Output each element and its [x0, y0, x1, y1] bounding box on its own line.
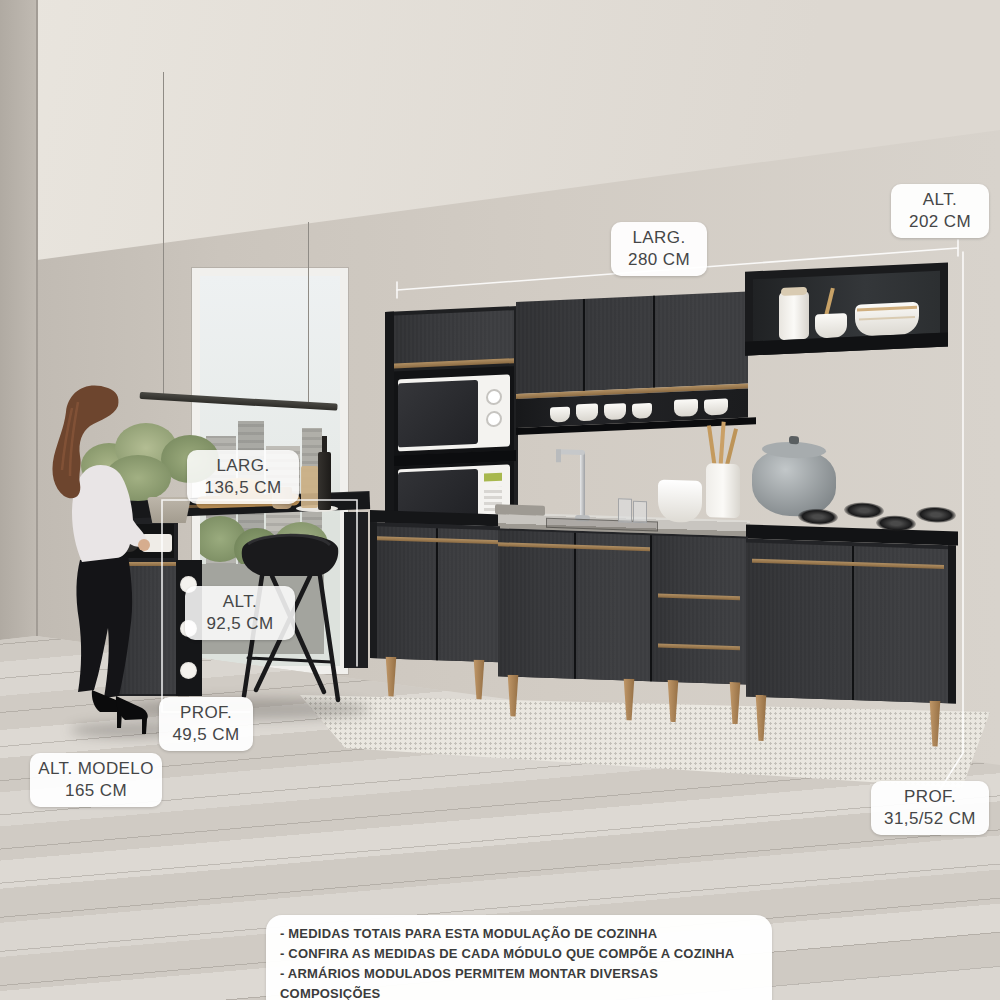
- cooktop-burner: [798, 508, 838, 525]
- base-unit-left-doors: [377, 526, 500, 662]
- door-seam: [436, 528, 438, 660]
- label-line: ALT.: [193, 591, 287, 613]
- drying-tray: [495, 504, 545, 516]
- counter-bowl-stack: [658, 480, 702, 523]
- pot-knob: [789, 436, 799, 444]
- wine-bottle-tall: [318, 452, 331, 510]
- label-line: 31,5/52 CM: [879, 808, 981, 830]
- notes-box: - MEDIDAS TOTAIS PARA ESTA MODULAÇÃO DE …: [266, 915, 772, 1000]
- label-prof-total: PROF. 31,5/52 CM: [871, 781, 989, 835]
- cabinet-leg: [384, 656, 398, 696]
- label-line: 92,5 CM: [193, 613, 287, 635]
- product-image-kitchen-set: ALT. 202 CM LARG. 280 CM LARG. 136,5 CM …: [0, 0, 1000, 1000]
- pendant-cable-left: [163, 72, 164, 396]
- base-unit-side: [948, 545, 956, 703]
- faucet-body: [580, 452, 585, 518]
- base-unit-cooktop: [746, 538, 956, 703]
- cabinet-leg: [472, 659, 486, 699]
- label-larg-total: LARG. 280 CM: [611, 222, 707, 276]
- label-prof-island: PROF. 49,5 CM: [159, 697, 253, 751]
- label-larg-island: LARG. 136,5 CM: [187, 450, 299, 504]
- door-seam: [852, 546, 854, 700]
- label-line: PROF.: [167, 702, 245, 724]
- faucet-tip: [556, 449, 561, 462]
- decanter: [301, 466, 318, 508]
- note-line: - MEDIDAS TOTAIS PARA ESTA MODULAÇÃO DE …: [280, 924, 758, 944]
- label-line: ALT.: [899, 189, 981, 211]
- label-alt-island: ALT. 92,5 CM: [185, 586, 295, 640]
- label-line: PROF.: [879, 786, 981, 808]
- label-line: 136,5 CM: [195, 477, 291, 499]
- cabinet-leg: [928, 701, 942, 747]
- cooktop-burner: [844, 502, 884, 519]
- label-line: 280 CM: [619, 249, 699, 271]
- label-line: 165 CM: [38, 780, 154, 802]
- kitchen-base-cabinets: [370, 0, 970, 820]
- base-unit-sink: [498, 528, 748, 684]
- glass: [633, 501, 647, 523]
- label-alt-total: ALT. 202 CM: [891, 184, 989, 238]
- drawer-stack: [650, 535, 748, 684]
- label-line: 49,5 CM: [167, 724, 245, 746]
- island-leg-panel: [344, 512, 368, 668]
- base-unit-side: [370, 522, 377, 658]
- door-seam: [650, 535, 652, 681]
- note-line: - ARMÁRIOS MODULADOS PERMITEM MONTAR DIV…: [280, 964, 758, 1000]
- cooking-pot: [752, 449, 836, 518]
- utensil-crock: [706, 463, 740, 518]
- cabinet-leg: [622, 678, 636, 720]
- note-line: - CONFIRA AS MEDIDAS DE CADA MÓDULO QUE …: [280, 944, 758, 964]
- glass: [618, 498, 632, 522]
- person-woman: [20, 378, 170, 743]
- label-line: ALT. MODELO: [38, 758, 154, 780]
- label-line: 202 CM: [899, 211, 981, 233]
- pendant-cable-right: [308, 222, 309, 406]
- cabinet-leg: [666, 680, 680, 722]
- cooktop-burner: [916, 506, 956, 523]
- label-alt-model: ALT. MODELO 165 CM: [30, 753, 162, 807]
- label-line: LARG.: [195, 455, 291, 477]
- cabinet-leg: [728, 682, 742, 724]
- wine-bottle: [180, 662, 197, 679]
- base-unit-left: [370, 522, 500, 662]
- label-line: LARG.: [619, 227, 699, 249]
- cabinet-leg: [754, 695, 768, 741]
- cabinet-leg: [506, 675, 520, 717]
- door-seam: [574, 533, 576, 679]
